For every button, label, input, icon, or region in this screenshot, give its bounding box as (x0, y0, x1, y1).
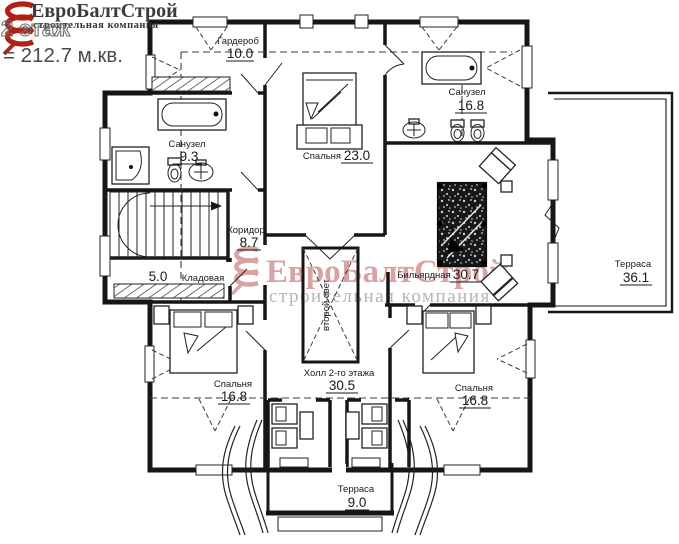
room-label-bathroom-right: Санузел (448, 87, 485, 98)
bed-left (154, 306, 253, 373)
staircase (110, 192, 228, 258)
right-terrace (548, 93, 672, 312)
shower-cabin (112, 147, 149, 184)
seating-nook-right (346, 404, 387, 467)
floor-plan: Гардероб 10.0 Спальня 23.0 Санузел 16.8 … (0, 0, 679, 544)
room-area-bedroom-right: 16.8 (462, 393, 488, 408)
room-area-bathroom-left: 9.3 (180, 149, 199, 164)
floor-plan-page: ЕвроБалтСтрой строительная компания (0, 0, 679, 544)
room-label-terrace-right: Терраса (615, 259, 652, 270)
sink-right (403, 119, 425, 138)
bathtub-left (158, 99, 226, 130)
room-area-bedroom-left: 16.8 (221, 389, 247, 404)
room-label-storage: Кладовая (182, 273, 225, 284)
total-area-label: = 212.7 м.кв. (3, 44, 123, 67)
terrace-passage (332, 464, 346, 476)
terrace-curved-balustrade-left (222, 420, 268, 535)
room-area-wardrobe: 10.0 (227, 46, 253, 61)
bathtub-right (422, 52, 481, 84)
header: ЕвроБалтСтрой строительная компания 2 эт… (0, 0, 210, 80)
room-area-bedroom-top: 23.0 (344, 148, 370, 163)
bed-right (407, 306, 491, 373)
room-area-hall: 30.5 (329, 378, 355, 393)
billiard-table (437, 183, 487, 266)
stairs-direction-arrow (211, 202, 222, 211)
toilet-right-2 (471, 120, 484, 142)
room-area-storage: 5.0 (149, 269, 168, 284)
seating-nook-left (272, 404, 313, 467)
room-label-bedroom-top: Спальня (303, 151, 341, 162)
billiard-chair-bottom (481, 264, 518, 301)
storage-shelving (114, 284, 224, 298)
void-label: второй свет (321, 278, 332, 331)
room-area-terrace-right: 36.1 (623, 270, 649, 285)
room-area-terrace-bottom: 9.0 (348, 495, 367, 510)
billiard-chair-top (479, 148, 515, 184)
bed-top (297, 73, 362, 149)
room-label-billiard: Бильярдная (397, 270, 450, 281)
room-area-bathroom-right: 16.8 (458, 98, 484, 113)
side-table-bottom (501, 255, 512, 266)
room-label-terrace-bottom: Терраса (338, 484, 375, 495)
terrace-curved-balustrade-right (392, 420, 438, 535)
room-area-corridor: 8.7 (240, 235, 259, 250)
side-table-top (501, 181, 512, 192)
floor-number-label: 2 этаж (1, 16, 70, 41)
room-area-billiard: 30.7 (453, 267, 479, 282)
